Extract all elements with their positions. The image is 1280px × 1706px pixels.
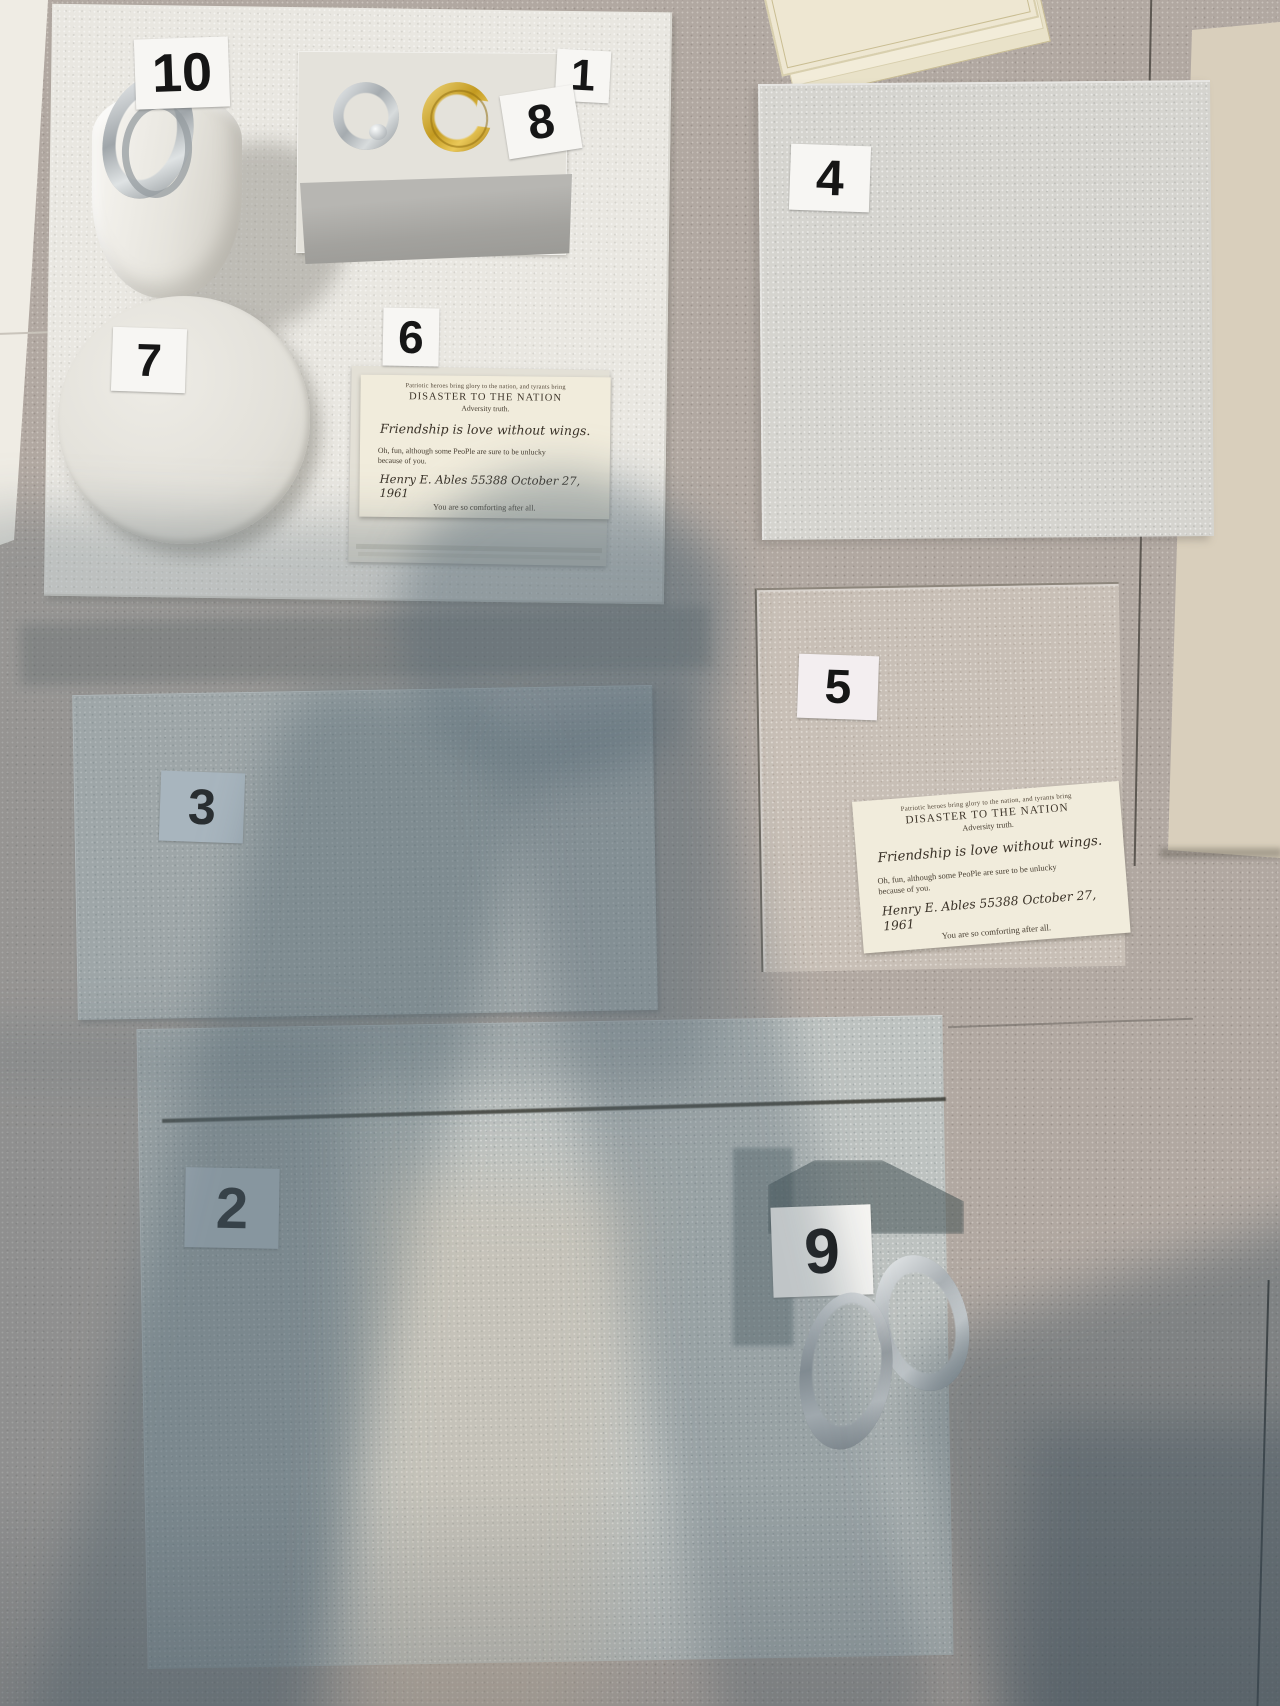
number-tag-6: 6	[382, 308, 439, 367]
number-tag-3: 3	[159, 771, 245, 844]
quote-card-footer: You are so comforting after all.	[359, 502, 609, 514]
quote-card-signature: Henry E. Ables 55388 October 27, 1961	[359, 472, 609, 503]
number-tag-4-text: 4	[815, 149, 845, 208]
quote-card-5: Patriotic heroes bring glory to the nati…	[852, 781, 1131, 953]
number-tag-4: 4	[789, 144, 871, 213]
beige-board-shadow	[1160, 848, 1280, 858]
display-board-3	[72, 685, 658, 1020]
number-tag-10: 10	[134, 36, 230, 109]
number-tag-6-text: 6	[398, 310, 425, 364]
jewelry-display-photo: 10 1 8 7 Patriotic heroes bring glory to…	[0, 0, 1280, 1706]
quote-card-6: Patriotic heroes bring glory to the nati…	[359, 375, 610, 520]
number-tag-8-text: 8	[524, 93, 559, 152]
number-tag-3-text: 3	[187, 778, 217, 837]
quote-card-header: Patriotic heroes bring glory to the nati…	[361, 382, 611, 392]
number-tag-10-text: 10	[151, 41, 213, 105]
quote-card-subtitle: Adversity truth.	[360, 403, 610, 415]
number-tag-9: 9	[770, 1204, 873, 1297]
number-tag-9-text: 9	[803, 1213, 841, 1288]
photographer-shadow-corner	[1020, 1420, 1280, 1706]
number-tag-7: 7	[111, 327, 187, 394]
number-tag-2: 2	[184, 1167, 279, 1249]
number-tag-5: 5	[797, 654, 879, 721]
gold-ring-8-band-line	[427, 87, 491, 151]
quote-card-script: Friendship is love without wings.	[360, 421, 610, 439]
tile-edge-line	[948, 1018, 1193, 1029]
quote-card-body2: because of you.	[360, 456, 610, 468]
tile-gap-line	[1256, 1280, 1269, 1706]
number-tag-2-text: 2	[215, 1174, 248, 1242]
concrete-bar	[300, 174, 572, 264]
tile-edge-band	[19, 606, 710, 686]
silver-ring-1-bead	[369, 124, 387, 140]
number-tag-7-text: 7	[135, 333, 162, 388]
number-tag-5-text: 5	[824, 659, 853, 715]
number-tag-8: 8	[499, 85, 582, 160]
